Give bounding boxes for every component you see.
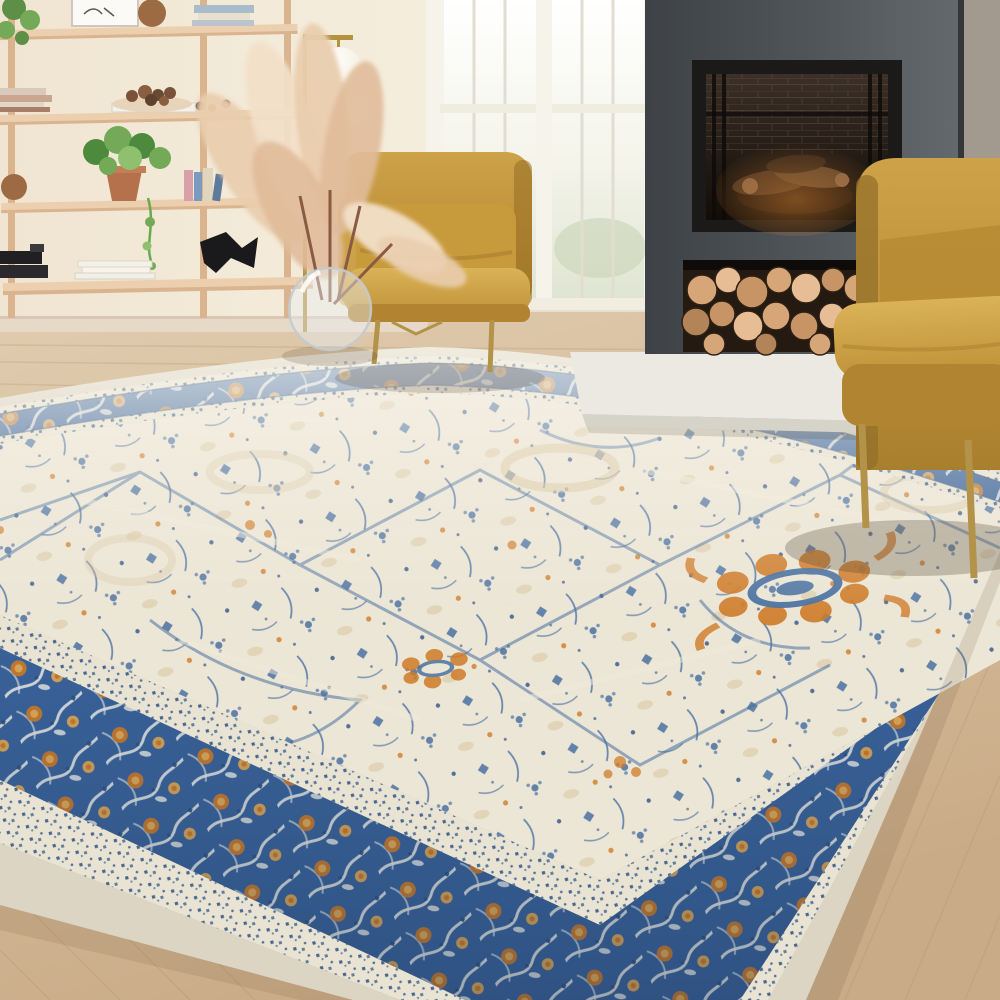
area-rug [0, 347, 1000, 1000]
firebox-crossbar [706, 112, 888, 116]
picture-frame [72, 0, 138, 26]
scene-canvas [0, 0, 1000, 1000]
armchair-left-shadow [335, 363, 545, 393]
armchair-left-base-rail [348, 304, 530, 322]
book-stack-top [192, 5, 254, 26]
white-magazine-stack [75, 261, 155, 279]
wooden-sphere-top [138, 0, 166, 27]
glass-vase [289, 268, 371, 350]
window-mullion [536, 0, 552, 300]
sash-bar-left [440, 104, 540, 113]
sash-bar-right [548, 104, 648, 113]
lamp-stem [337, 39, 340, 48]
book-stack-left [0, 88, 52, 112]
garden-view-right [554, 218, 646, 278]
wooden-sphere-mid [1, 174, 27, 200]
living-room-photo [0, 0, 1000, 1000]
fire-glow [716, 144, 876, 236]
armchair-right-seat-base [842, 364, 1000, 426]
